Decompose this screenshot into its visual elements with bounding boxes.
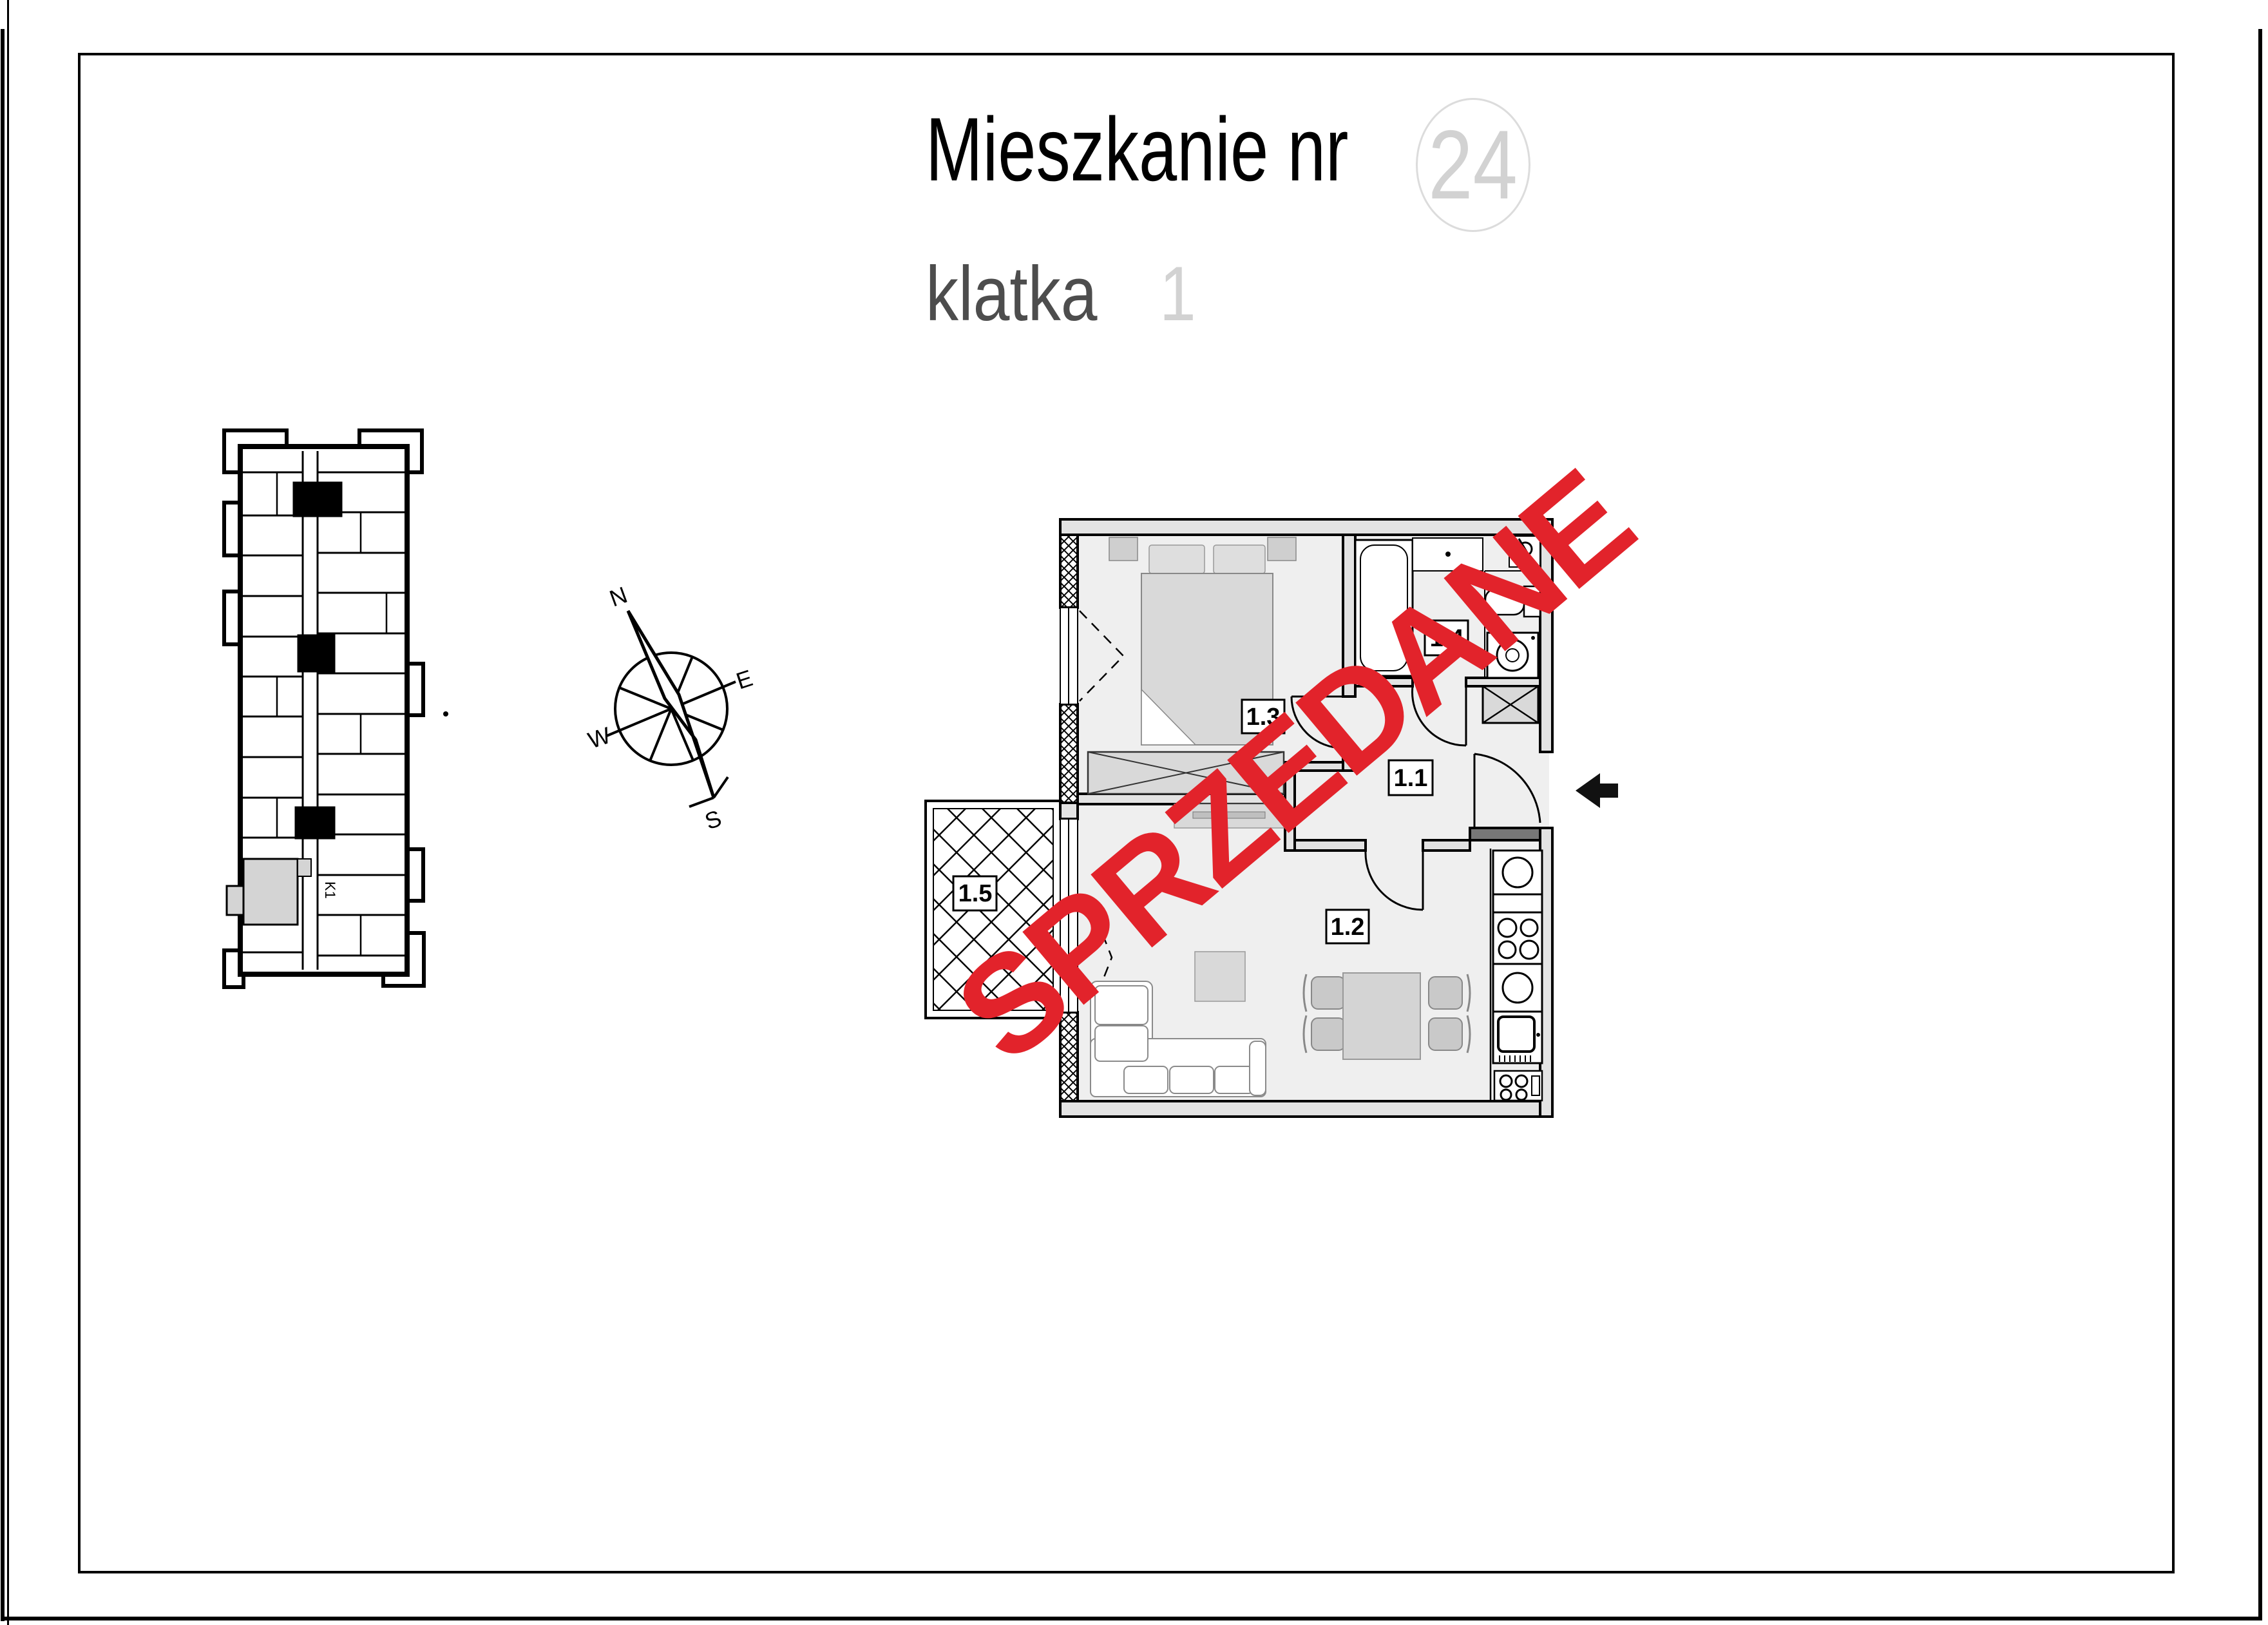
compass-needle: [628, 611, 714, 798]
chair: [1311, 977, 1345, 1009]
staircase-title: klatka1: [926, 255, 1203, 332]
entry-arrow: [1576, 773, 1618, 808]
core-label: K1: [322, 881, 338, 899]
chair: [1429, 1018, 1462, 1050]
apartment-number-badge: 24: [1416, 98, 1530, 232]
coffee-table: [1195, 952, 1245, 1001]
stove: [1494, 1071, 1542, 1101]
site-plan-building: K1: [224, 430, 448, 987]
chair: [1311, 1018, 1345, 1050]
kitchen-units: [1491, 849, 1542, 1102]
apartment-number: 24: [1429, 116, 1518, 214]
room-label-1.2: 1.2: [1326, 910, 1369, 943]
sink-bowl: [1503, 858, 1532, 887]
page-title: Mieszkanie nr: [926, 104, 1482, 195]
pillow: [1214, 545, 1265, 573]
title-label: Mieszkanie nr: [926, 104, 1348, 195]
svg-text:1.2: 1.2: [1331, 914, 1365, 941]
compass-south-label: S: [701, 805, 725, 835]
nightstand: [1109, 537, 1138, 561]
pillow: [1149, 545, 1205, 573]
compass-rose: N E W S: [585, 581, 756, 834]
svg-text:1.5: 1.5: [958, 880, 993, 907]
kitchen-sink: [1493, 1012, 1542, 1063]
drawing-sheet: K1 N E W S: [0, 0, 2268, 1625]
room-label-1.5: 1.5: [953, 876, 996, 910]
compass-east-label: E: [733, 664, 756, 694]
dining-table: [1343, 973, 1420, 1059]
chair: [1429, 977, 1462, 1009]
nightstand: [1268, 537, 1296, 561]
compass-west-label: W: [585, 722, 614, 753]
staircase-number: 1: [1159, 255, 1196, 332]
reference-dot: [443, 711, 448, 716]
staircase-label: klatka: [926, 255, 1097, 332]
compass-north-label: N: [606, 581, 631, 611]
